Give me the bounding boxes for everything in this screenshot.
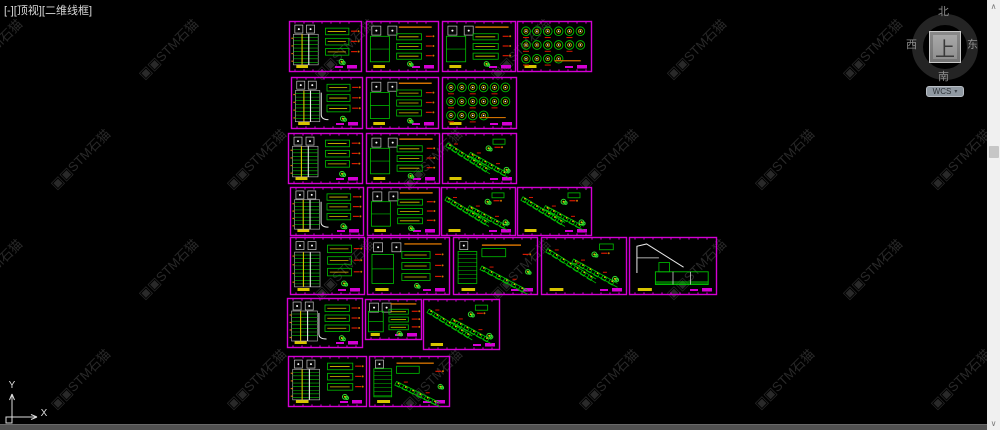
viewcube-north-label[interactable]: 北 (938, 3, 949, 19)
drawing-sheet[interactable] (291, 188, 364, 236)
drawing-canvas[interactable]: ▣▣STM石猫▣▣STM石猫▣▣STM石猫▣▣STM石猫▣▣STM石猫▣▣STM… (0, 0, 987, 424)
drawing-sheet[interactable] (368, 238, 450, 295)
watermark-text: ▣▣STM石猫 (312, 16, 378, 82)
watermark-text: ▣▣STM石猫 (224, 126, 290, 192)
watermark-text: ▣▣STM石猫 (48, 126, 114, 192)
watermark-text: ▣▣STM石猫 (840, 236, 906, 302)
drawing-sheet[interactable] (542, 238, 627, 295)
watermark-text: ▣▣STM石猫 (0, 16, 25, 82)
watermark-text: ▣▣STM石猫 (664, 16, 730, 82)
watermark-text: ▣▣STM石猫 (136, 236, 202, 302)
watermark-text: ▣▣STM石猫 (224, 346, 290, 412)
watermark-text: ▣▣STM石猫 (752, 126, 818, 192)
viewcube-south-label[interactable]: 南 (938, 68, 949, 84)
cad-application-window: ▣▣STM石猫▣▣STM石猫▣▣STM石猫▣▣STM石猫▣▣STM石猫▣▣STM… (0, 0, 1000, 430)
wcs-dropdown-button[interactable]: WCS ▾ (926, 86, 964, 97)
drawing-sheet[interactable] (366, 300, 422, 340)
viewcube[interactable]: 上 北 南 西 东 WCS ▾ (898, 0, 988, 110)
drawing-sheet[interactable] (288, 299, 363, 348)
ucs-origin-square (6, 417, 12, 423)
scroll-down-button[interactable]: ∨ (987, 417, 1000, 430)
drawing-sheet[interactable] (443, 78, 517, 129)
watermark-text: ▣▣STM石猫 (576, 346, 642, 412)
drawing-sheet[interactable] (289, 357, 367, 407)
watermark-text: ▣▣STM石猫 (752, 346, 818, 412)
viewcube-west-label[interactable]: 西 (906, 36, 917, 52)
drawing-sheet[interactable] (367, 78, 439, 129)
watermark-text: ▣▣STM石猫 (488, 236, 554, 302)
watermark-text: ▣▣STM石猫 (0, 236, 25, 302)
drawing-sheet[interactable] (368, 188, 440, 236)
drawing-sheet[interactable] (424, 300, 500, 350)
wcs-label: WCS (933, 88, 952, 96)
ucs-y-label: Y (9, 380, 16, 391)
viewport-controls-label[interactable]: [-][顶视][二维线框] (4, 2, 92, 18)
vertical-scrollbar[interactable]: ∧ ∨ (987, 0, 1000, 430)
watermark-text: ▣▣STM石猫 (928, 126, 987, 192)
viewcube-top-face[interactable]: 上 (929, 31, 961, 63)
ucs-x-label: X (41, 408, 48, 419)
drawing-sheet[interactable] (367, 134, 440, 184)
watermark-text: ▣▣STM石猫 (840, 16, 906, 82)
scroll-up-button[interactable]: ∧ (987, 0, 1000, 13)
watermark-text: ▣▣STM石猫 (576, 126, 642, 192)
scrollbar-thumb[interactable] (989, 146, 999, 158)
drawing-sheet[interactable] (292, 78, 363, 129)
chevron-down-icon: ▾ (954, 89, 957, 95)
viewcube-east-label[interactable]: 东 (967, 36, 978, 52)
drawing-sheet[interactable] (442, 188, 516, 236)
bottom-edge-bar (0, 424, 987, 430)
watermark-text: ▣▣STM石猫 (664, 236, 730, 302)
watermark-layer: ▣▣STM石猫▣▣STM石猫▣▣STM石猫▣▣STM石猫▣▣STM石猫▣▣STM… (0, 0, 987, 412)
drawing-sheet[interactable] (518, 188, 592, 236)
watermark-text: ▣▣STM石猫 (136, 16, 202, 82)
viewcube-top-label: 上 (935, 33, 955, 62)
watermark-text: ▣▣STM石猫 (928, 346, 987, 412)
ucs-axis-icon: Y X (0, 360, 60, 424)
drawing-sheet[interactable] (289, 134, 363, 184)
drawing-sheet[interactable] (367, 22, 439, 72)
watermark-text: ▣▣STM石猫 (400, 126, 466, 192)
